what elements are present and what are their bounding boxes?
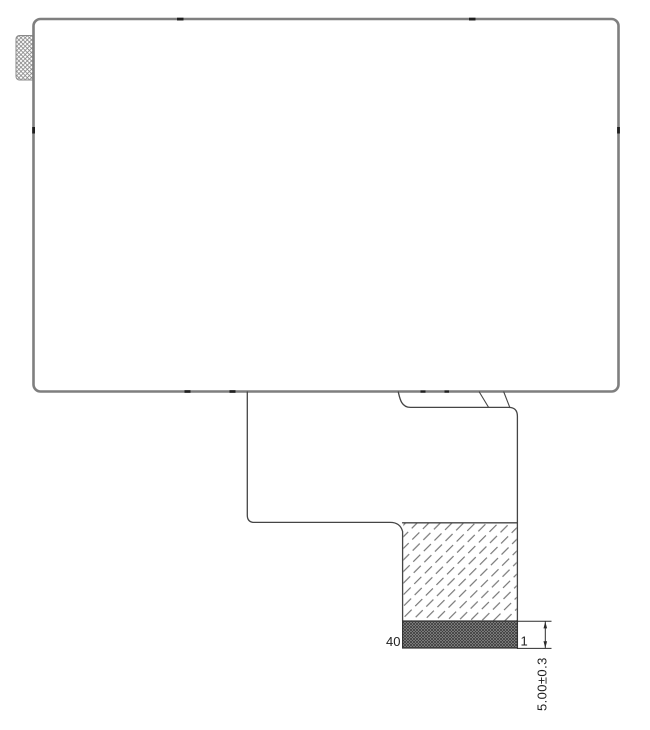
fpc-fold-line-1 [479, 392, 488, 407]
tick-bottom-2 [230, 390, 236, 393]
lcd-module-outline-drawing: 40 1 5.00±0.3 [0, 0, 650, 730]
tick-top-right [469, 18, 476, 21]
fpc-fold-line-2 [504, 392, 510, 407]
fpc-stiffener-hatch [403, 524, 516, 621]
tick-bottom-1 [185, 390, 191, 393]
tick-left-edge [32, 127, 35, 134]
lcd-panel-outline [34, 19, 619, 392]
tick-right-edge [617, 127, 620, 134]
pin-40-label: 40 [386, 634, 400, 649]
pin-1-label: 1 [521, 634, 528, 649]
dimension-arrow-up [544, 622, 548, 629]
tick-bottom-3 [421, 390, 426, 392]
tick-bottom-4 [445, 390, 450, 392]
thickness-dimension-label: 5.00±0.3 [535, 657, 550, 711]
fpc-left-and-bottom-edge [247, 392, 402, 621]
tick-top-left [177, 18, 184, 21]
technical-drawing-canvas: 40 1 5.00±0.3 [0, 0, 650, 730]
dimension-arrow-down [544, 641, 548, 648]
connector-contact-bar [403, 621, 518, 648]
